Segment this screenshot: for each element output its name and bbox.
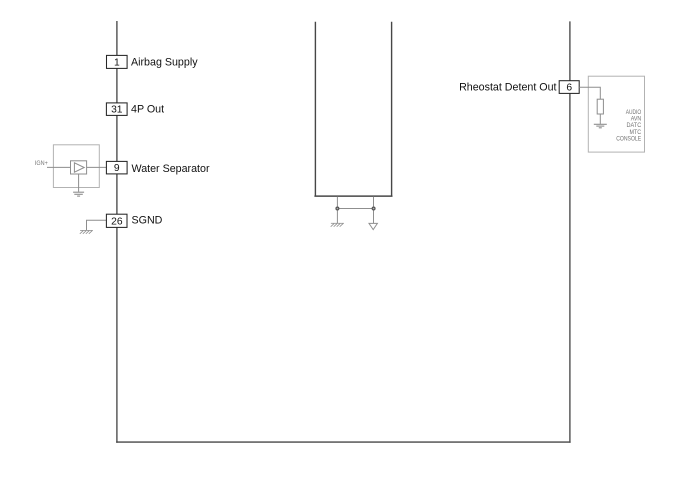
svg-text:SGND: SGND xyxy=(132,215,163,227)
svg-text:CONSOLE: CONSOLE xyxy=(616,135,641,142)
svg-text:Rheostat Detent Out: Rheostat Detent Out xyxy=(459,81,556,93)
svg-text:Water Separator: Water Separator xyxy=(132,163,210,175)
svg-text:IGN+: IGN+ xyxy=(35,160,48,167)
svg-text:6: 6 xyxy=(566,83,572,94)
svg-text:Airbag Supply: Airbag Supply xyxy=(131,57,198,69)
svg-text:26: 26 xyxy=(111,216,123,227)
svg-text:4P Out: 4P Out xyxy=(131,104,164,116)
svg-text:9: 9 xyxy=(114,163,120,174)
svg-text:1: 1 xyxy=(114,57,120,68)
svg-text:31: 31 xyxy=(111,105,123,116)
